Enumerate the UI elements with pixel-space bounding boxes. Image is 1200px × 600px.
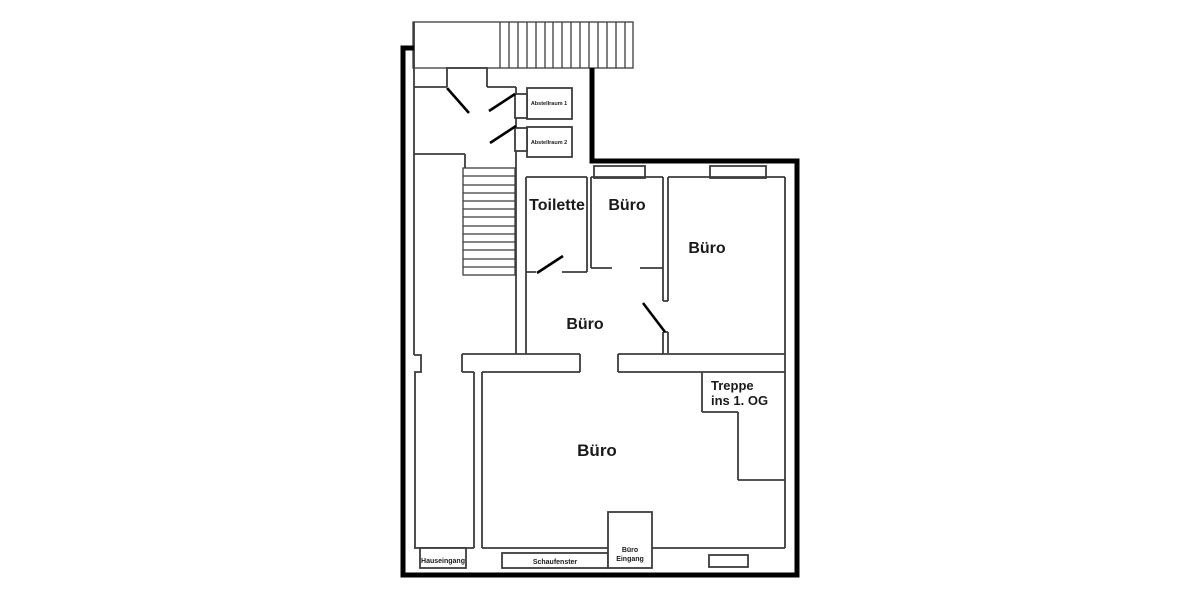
upper-stair-hatched-block [413, 22, 633, 68]
windows [594, 166, 766, 567]
floor-plan-svg: Toilette Büro Büro Büro Büro Abstellraum… [0, 0, 1200, 600]
label-buero-small: Büro [608, 197, 646, 214]
entry-vestibule [447, 68, 487, 87]
floor-plan: Toilette Büro Büro Büro Büro Abstellraum… [0, 0, 1200, 600]
label-schaufenster: Schaufenster [533, 559, 578, 566]
buero-small-walls [591, 177, 663, 268]
label-hauseingang: Hauseingang [421, 558, 465, 565]
staircase [463, 168, 515, 275]
label-abstellraum-1: Abstellraum 1 [531, 101, 567, 107]
mid-wall-block [462, 354, 785, 372]
toilette-walls [526, 177, 587, 272]
label-buero-eingang-line2: Eingang [616, 556, 644, 563]
label-treppe-line1: Treppe [711, 378, 754, 393]
window-bottom-right [709, 555, 748, 567]
label-toilette: Toilette [529, 197, 585, 214]
door-entry-hall [447, 88, 469, 113]
hall-room-divider-wall [516, 87, 526, 354]
label-buero-middle: Büro [566, 316, 604, 333]
label-abstellraum-2: Abstellraum 2 [531, 140, 567, 146]
door-abstellraum-1 [489, 94, 515, 111]
storage-rooms [515, 88, 572, 157]
door-abstellraum-2 [490, 126, 516, 143]
corridor-walls [414, 22, 474, 548]
abstellraum-2-door-connector [515, 128, 527, 151]
label-buero-main: Büro [577, 441, 617, 460]
outer-wall [403, 48, 797, 575]
label-treppe-line2: ins 1. OG [711, 393, 768, 408]
label-buero-large: Büro [688, 240, 726, 257]
abstellraum-1-door-connector [515, 94, 527, 118]
door-buero-large [643, 303, 665, 332]
entry-hall-walls [414, 87, 516, 168]
buero-large-walls [668, 177, 785, 548]
door-toilette [537, 256, 563, 273]
label-buero-eingang-line1: Büro [622, 547, 638, 554]
